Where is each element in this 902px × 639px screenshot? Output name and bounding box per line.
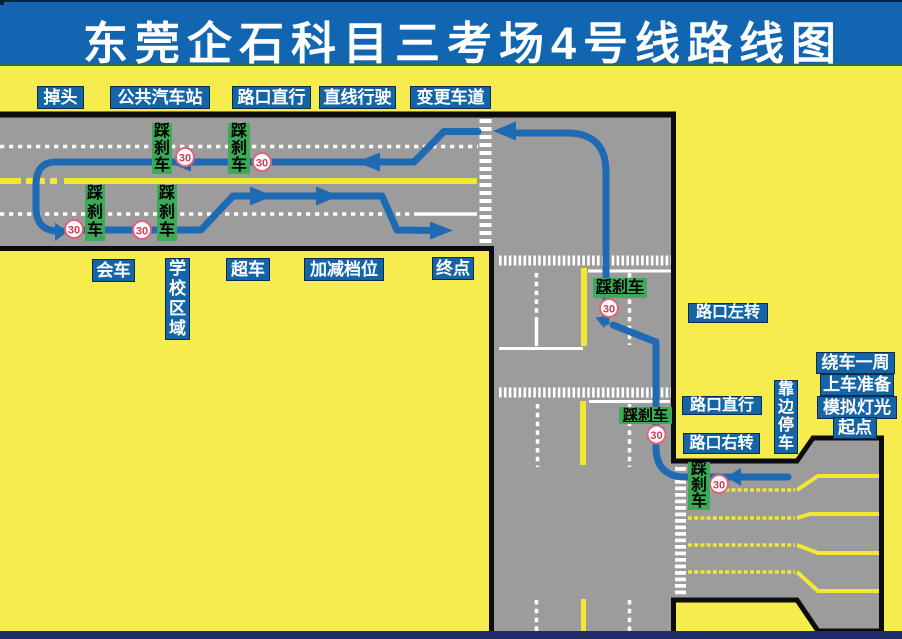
svg-text:30: 30 (68, 225, 80, 237)
svg-text:30: 30 (179, 153, 191, 165)
svg-text:30: 30 (650, 430, 662, 442)
svg-text:30: 30 (603, 304, 615, 316)
svg-text:30: 30 (136, 226, 148, 238)
svg-text:30: 30 (713, 480, 725, 492)
svg-text:30: 30 (256, 158, 268, 170)
